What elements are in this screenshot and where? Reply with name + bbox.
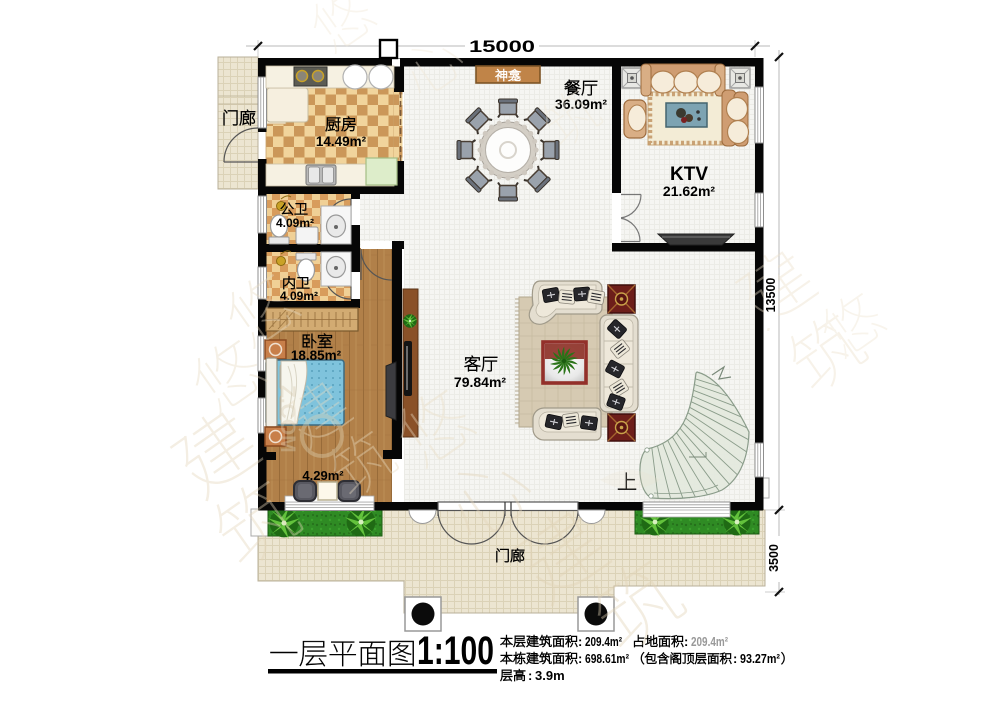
- svg-text:Z.COM: Z.COM: [276, 385, 299, 453]
- svg-text:209.4m²: 209.4m²: [691, 634, 729, 649]
- svg-text:93.27m²: 93.27m²: [740, 651, 781, 666]
- svg-text:3.9m: 3.9m: [535, 668, 565, 683]
- svg-text:18.85m²: 18.85m²: [291, 348, 342, 363]
- svg-text:4.09m²: 4.09m²: [276, 216, 314, 230]
- svg-text::: :: [578, 651, 582, 666]
- svg-text::: :: [578, 634, 582, 649]
- svg-text:KTV: KTV: [670, 164, 708, 185]
- svg-text::: :: [733, 651, 737, 666]
- svg-text:698.61m²: 698.61m²: [585, 651, 630, 666]
- svg-text:14.49m²: 14.49m²: [316, 134, 367, 149]
- svg-text:209.4m²: 209.4m²: [585, 634, 623, 649]
- svg-text:1:100: 1:100: [417, 629, 494, 673]
- svg-text::: :: [684, 634, 688, 649]
- svg-text::: :: [528, 668, 532, 683]
- svg-text:13500: 13500: [764, 278, 778, 313]
- svg-text:15000: 15000: [469, 37, 535, 56]
- svg-text:21.62m²: 21.62m²: [663, 183, 715, 199]
- svg-text:3500: 3500: [767, 544, 781, 572]
- svg-text:79.84m²: 79.84m²: [454, 374, 506, 390]
